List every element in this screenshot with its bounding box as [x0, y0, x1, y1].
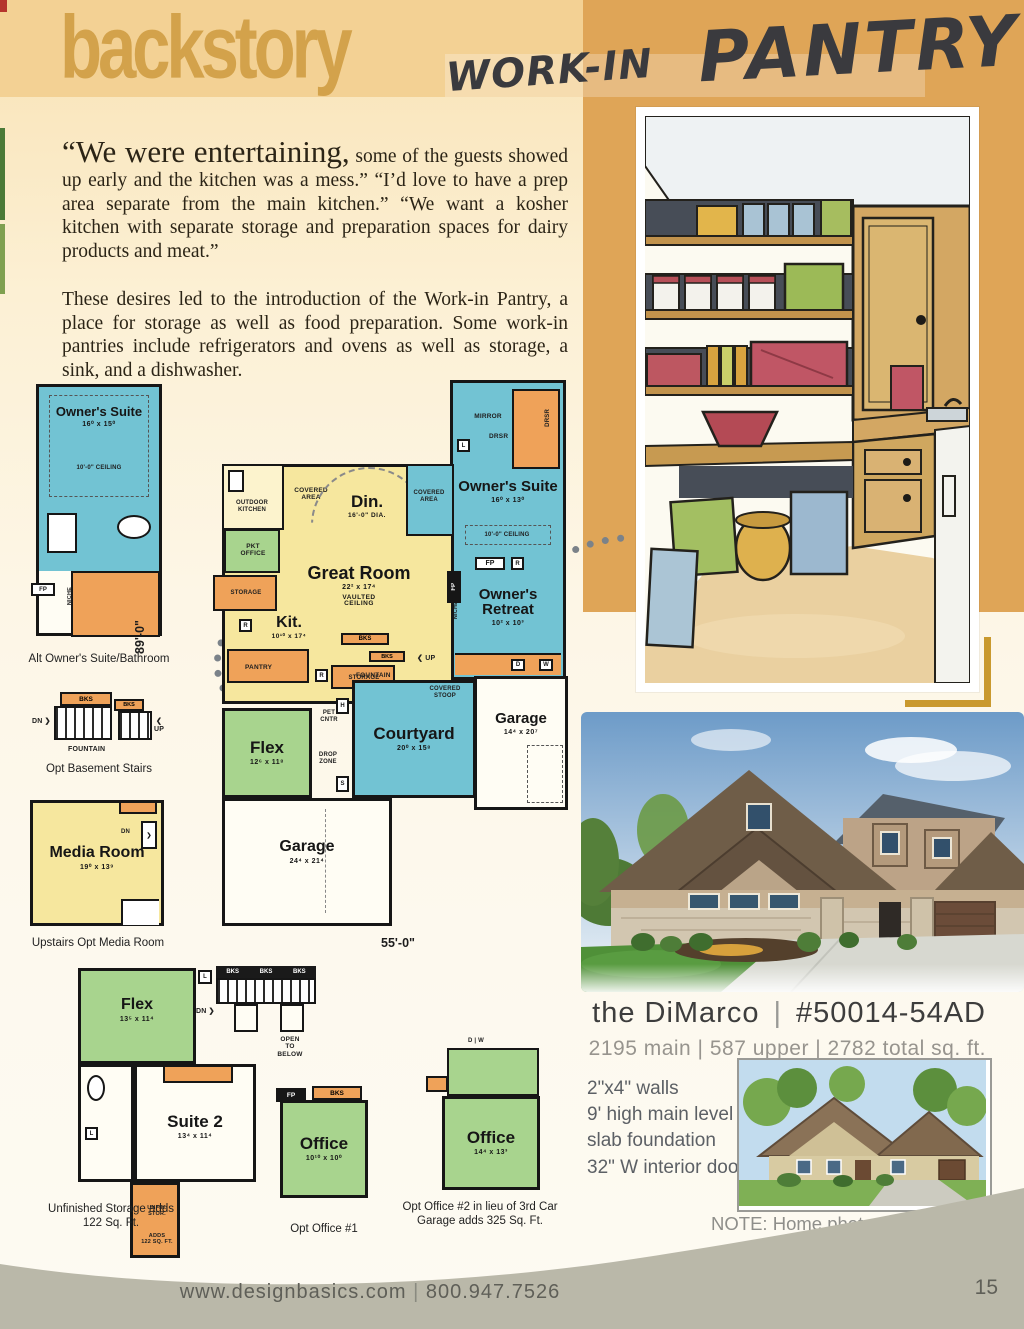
intro-copy: “We were entertaining, some of the guest… — [62, 136, 568, 407]
media-room-outline: ❯ DN Media Room 19⁰ x 13⁹ — [30, 800, 164, 926]
bks-label: BKS — [260, 969, 273, 975]
fireplace-side-chip: FP — [447, 571, 461, 603]
plan-alt-owners-suite: Owner's Suite 16⁰ x 15⁰ 10'-0" CEILING F… — [30, 384, 170, 650]
outdoor-kitchen: OUTDOOR KITCHEN — [224, 466, 284, 530]
courtyard-name: Courtyard 20⁰ x 15⁸ — [355, 725, 473, 752]
chevron-right-icon: ❯ — [209, 1008, 215, 1015]
pkt-office-label: PKT OFFICE — [236, 543, 270, 558]
pantry-illustration-frame — [636, 107, 979, 692]
caption-media: Upstairs Opt Media Room — [14, 936, 182, 950]
courtyard-dims: 20⁰ x 15⁸ — [355, 745, 473, 752]
page-number: 15 — [975, 1276, 998, 1300]
drsr-vertical-label: DRSR — [545, 409, 552, 427]
bks-chip: BKS — [312, 1086, 362, 1100]
office2-closet — [426, 1076, 448, 1092]
office2-name: Office 14⁴ x 13³ — [445, 1129, 537, 1156]
suite2-room: Suite 2 13⁴ x 11⁴ — [134, 1064, 256, 1182]
plan-basement-stairs: BKS BKS DN ❯ ❮ UP FOUNTAIN — [32, 692, 168, 760]
gold-corner-accent — [905, 637, 991, 707]
plan-opt-office-2: D | W Office 14⁴ x 13³ — [412, 1036, 547, 1196]
room-name: Media Room 19⁰ x 13⁹ — [33, 845, 161, 871]
washer-chip: W — [539, 659, 553, 671]
dryer-chip: D — [511, 659, 525, 671]
great-room-name: Great Room 22² x 17⁴ VAULTED CEILING — [289, 565, 429, 607]
stairs-down — [54, 706, 112, 740]
flex-dims: 12⁶ x 11⁸ — [225, 759, 309, 766]
dn-label: DN ❯ — [32, 718, 51, 726]
stair-column-2 — [280, 1004, 304, 1032]
plan-width-dimension: 55'-0" — [328, 936, 468, 950]
outdoor-kitchen-label: OUTDOOR KITCHEN — [228, 500, 276, 514]
owners-retreat-name: Owner's Retreat 10² x 10³ — [453, 587, 563, 627]
spec-list: 2"x4" walls 9' high main level slab foun… — [587, 1076, 754, 1181]
plan-main-level: DRSR MIRROR DRSR L Owner's Suite 16⁰ x 1… — [208, 378, 570, 944]
r-chip: R — [511, 557, 524, 570]
intro-paragraph-1: “We were entertaining, some of the guest… — [62, 136, 568, 264]
intro-paragraph-2: These desires led to the introduction of… — [62, 288, 568, 383]
garage-main: Garage 24⁴ x 21⁴ — [222, 798, 392, 926]
spec-walls: 2"x4" walls — [587, 1076, 754, 1102]
fireplace-chip: FP — [475, 557, 505, 570]
r-chip-2: R — [315, 669, 328, 682]
flex-upper: Flex 13⁵ x 11⁴ — [78, 968, 196, 1064]
upper-stairs — [216, 978, 316, 1004]
product-title-row: the DiMarco | #50014-54AD — [592, 997, 986, 1030]
dining-dims: 16'-0" DIA. — [317, 513, 417, 520]
house-photo — [581, 712, 1024, 992]
pantry-illustration-svg — [645, 116, 970, 683]
page-edge-artifact-green — [0, 128, 5, 220]
covered-stoop-label: COVERED STOOP — [423, 686, 467, 700]
owners-suite-dims: 16⁰ x 13⁰ — [453, 497, 563, 504]
storage-left: STORAGE — [213, 575, 277, 611]
office2-room: Office 14⁴ x 13³ — [442, 1096, 540, 1190]
open-below-label: OPEN TO BELOW — [262, 1036, 318, 1058]
kitchen-name: Kit. 10¹⁰ x 17⁴ — [249, 615, 329, 641]
title-separator: | — [773, 997, 782, 1030]
plan-height-dimension: 89'-0" — [133, 597, 147, 677]
flex-upper-name: Flex 13⁵ x 11⁴ — [81, 997, 193, 1023]
mirror-label: MIRROR — [459, 413, 517, 420]
toilet-fixture — [87, 1075, 105, 1101]
drsr-label: DRSR — [489, 433, 508, 440]
utility-strip: D W — [455, 653, 561, 675]
plan-media-room: ❯ DN Media Room 19⁰ x 13⁹ — [28, 798, 168, 932]
page-edge-artifact-green2 — [0, 224, 5, 294]
page-edge-artifact-red — [0, 0, 7, 12]
flex-upper-dims: 13⁵ x 11⁴ — [81, 1016, 193, 1023]
drop-zone-label: DROP ZONE — [314, 752, 342, 766]
chevron-left-icon: ❮ — [417, 655, 423, 662]
garage-dash — [527, 745, 563, 803]
linen-chip: L — [457, 439, 470, 452]
owners-retreat-dims: 10² x 10³ — [453, 620, 563, 627]
spec-foundation: slab foundation — [587, 1128, 754, 1154]
dresser-area: DRSR — [512, 389, 560, 469]
tub-fixture — [117, 515, 151, 539]
footer-phone: 800.947.7526 — [426, 1281, 560, 1303]
linen-chip-2: L — [85, 1127, 98, 1140]
room-dims: 19⁰ x 13⁹ — [33, 864, 161, 871]
intro-lead: “We were entertaining, — [62, 134, 350, 169]
garage-main-dims: 24⁴ x 21⁴ — [225, 858, 389, 865]
stair-column — [234, 1004, 258, 1032]
dw-label: D | W — [468, 1038, 484, 1045]
up-label: ❮ UP — [150, 718, 168, 734]
alt-owners-bedroom: Owner's Suite 16⁰ x 15⁰ 10'-0" CEILING — [39, 387, 159, 507]
footer-url: www.designbasics.com — [180, 1281, 407, 1303]
brand-title: backstory — [60, 2, 349, 91]
bks-strip: BKS — [341, 633, 389, 645]
garage-dash-line — [325, 809, 326, 913]
up-label: ❮ UP — [417, 655, 435, 663]
media-orange-shelf — [119, 801, 157, 814]
living-block: OUTDOOR KITCHEN COVERED AREA Din. 16'-0"… — [222, 464, 454, 704]
owners-suite-name: Owner's Suite 16⁰ x 13⁰ — [453, 479, 563, 504]
footer-separator: | — [413, 1281, 419, 1303]
alt-owners-bath — [39, 505, 159, 571]
s-chip: S — [336, 776, 349, 792]
chevron-right-icon: ❯ — [146, 832, 151, 839]
flex-room: Flex 12⁶ x 11⁸ — [222, 708, 312, 798]
storage-label: STORAGE — [221, 590, 271, 597]
magazine-page: backstory WORK-IN PANTRY “We were entert… — [0, 0, 1024, 1329]
pantry-label: PANTRY — [245, 664, 272, 671]
grill-fixture — [228, 470, 244, 492]
suite2-name: Suite 2 13⁴ x 11⁴ — [137, 1113, 253, 1140]
great-room-dims: 22² x 17⁴ — [289, 585, 429, 592]
caption-alt-owners: Alt Owner's Suite/Bathroom — [28, 652, 170, 666]
kitchen-dims: 10¹⁰ x 17⁴ — [249, 634, 329, 641]
house-photo-svg — [581, 712, 1024, 992]
covered-area-right: COVERED AREA — [406, 466, 452, 536]
spec-ceiling: 9' high main level — [587, 1102, 754, 1128]
garage-main-name: Garage 24⁴ x 21⁴ — [225, 839, 389, 865]
caption-basement: Opt Basement Stairs — [24, 762, 174, 776]
vaulted-label: VAULTED CEILING — [289, 595, 429, 607]
pantry-room: PANTRY — [227, 649, 309, 683]
owners-wing: DRSR MIRROR DRSR L Owner's Suite 16⁰ x 1… — [450, 380, 566, 680]
bks-label: BKS — [226, 969, 239, 975]
garage-side-dims: 14⁴ x 20⁷ — [477, 729, 565, 736]
chevron-left-icon: ❮ — [156, 718, 162, 725]
upper-bath: L — [78, 1064, 134, 1182]
chevron-right-icon: ❯ — [45, 718, 51, 725]
bks-label: BKS — [293, 969, 306, 975]
article-title-large: PANTRY — [696, 0, 1021, 98]
bks-shelf: BKS — [60, 692, 112, 706]
stairs-up — [118, 711, 152, 740]
spec-doors: 32" W interior doors — [587, 1155, 754, 1181]
ceiling-dashbox: 10'-0" CEILING — [465, 525, 551, 545]
ceiling-label: 10'-0" CEILING — [472, 532, 542, 539]
office1-dims: 10¹⁰ x 10⁰ — [283, 1155, 365, 1162]
pocket-office: PKT OFFICE — [224, 529, 280, 573]
fountain-label: FOUNTAIN — [68, 746, 105, 754]
bks-strip-2: BKS — [369, 651, 405, 662]
bks-shelf-2: BKS — [114, 699, 144, 711]
room-name: Owner's Suite 16⁰ x 15⁰ — [39, 405, 159, 428]
shower-fixture — [47, 513, 77, 553]
suite2-dims: 13⁴ x 11⁴ — [137, 1133, 253, 1140]
h-chip: H — [336, 698, 349, 714]
office1-name: Office 10¹⁰ x 10⁰ — [283, 1135, 365, 1162]
fireplace-chip: FP — [31, 583, 55, 596]
dining-name: Din. 16'-0" DIA. — [317, 493, 417, 520]
r-chip: R — [239, 619, 252, 632]
linen-chip: L — [198, 970, 212, 984]
dn-label: DN ❯ — [196, 1008, 215, 1016]
garage-side: Garage 14⁴ x 20⁷ — [474, 676, 568, 810]
niche-label: NICHE — [67, 587, 73, 605]
product-name: the DiMarco — [592, 997, 759, 1030]
room-dims: 16⁰ x 15⁰ — [39, 421, 159, 428]
garage-side-name: Garage 14⁴ x 20⁷ — [477, 711, 565, 736]
ceiling-label: 10'-0" CEILING — [57, 465, 141, 472]
dn-label: DN — [121, 829, 130, 836]
media-notch — [121, 899, 159, 925]
plan-number: #50014-54AD — [796, 997, 986, 1030]
office2-dims: 14⁴ x 13³ — [445, 1149, 537, 1156]
footer-swoosh — [0, 1180, 1024, 1329]
suite2-closet — [163, 1065, 233, 1083]
fountain-label: FOUNTAIN — [356, 672, 391, 679]
office2-upper-room — [447, 1048, 539, 1096]
bks-row: BKS BKS BKS — [216, 966, 316, 978]
flex-name: Flex 12⁶ x 11⁸ — [225, 739, 309, 766]
courtyard: COVERED STOOP Courtyard 20⁰ x 15⁸ — [352, 680, 476, 798]
covered-area-right-label: COVERED AREA — [410, 490, 448, 504]
footer-contact: www.designbasics.com | 800.947.7526 — [150, 1281, 590, 1304]
